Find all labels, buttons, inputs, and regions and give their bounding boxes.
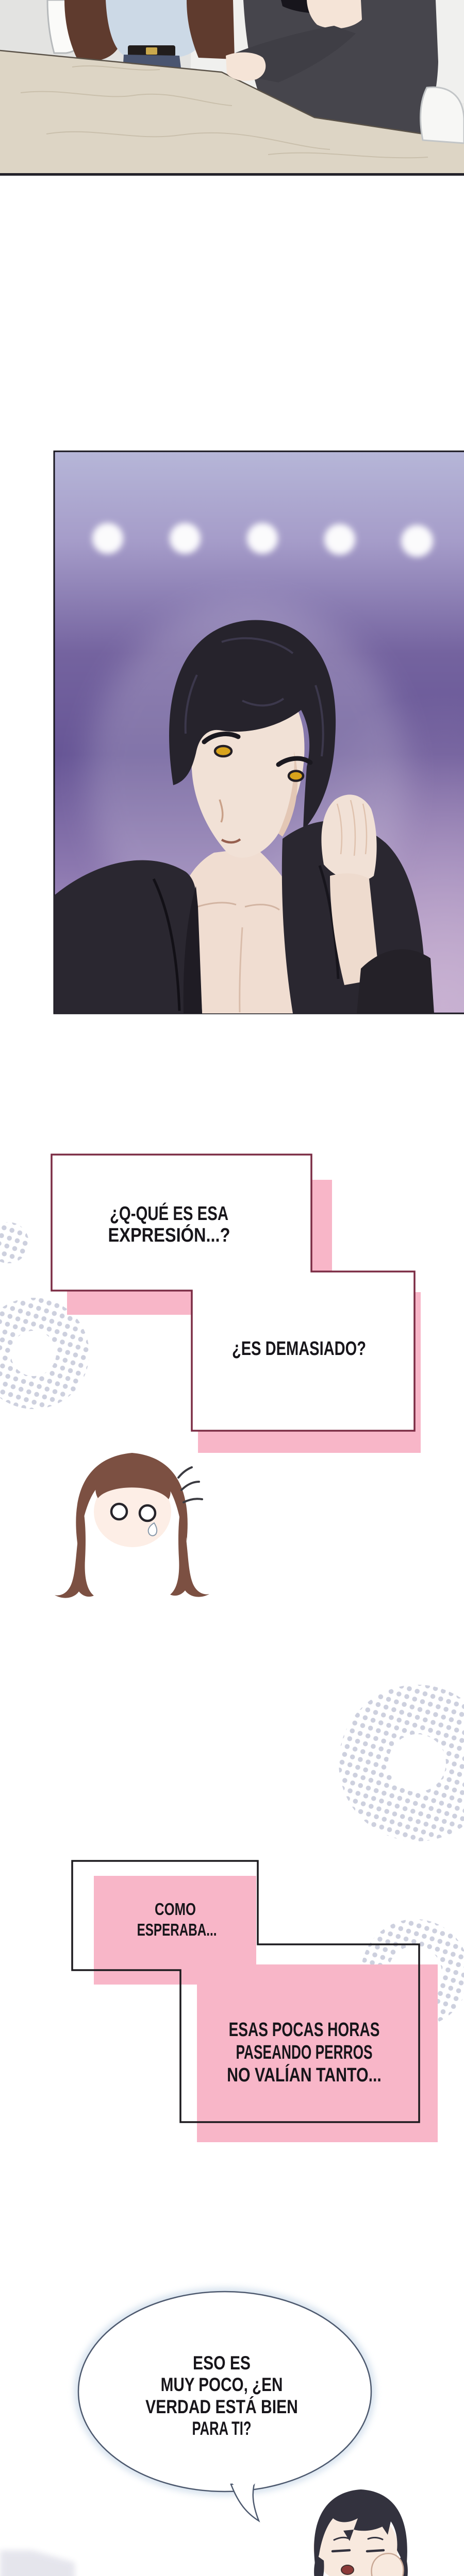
svg-text:NO VALÍAN TANTO...: NO VALÍAN TANTO... (227, 2063, 382, 2086)
svg-text:ESAS POCAS HORAS: ESAS POCAS HORAS (229, 2019, 380, 2041)
svg-text:¿Q-QUÉ ES ESA: ¿Q-QUÉ ES ESA (110, 1202, 228, 1225)
svg-text:MUY POCO, ¿EN: MUY POCO, ¿EN (161, 2375, 283, 2396)
svg-text:ESO ES: ESO ES (193, 2352, 251, 2374)
svg-text:VERDAD ESTÁ BIEN: VERDAD ESTÁ BIEN (145, 2396, 298, 2418)
svg-text:PASEANDO PERROS: PASEANDO PERROS (236, 2041, 372, 2063)
svg-text:COMO: COMO (155, 1900, 196, 1919)
svg-text:EXPRESIÓN...?: EXPRESIÓN...? (108, 1224, 230, 1246)
svg-text:ESPERABA...: ESPERABA... (137, 1921, 217, 1940)
svg-text:¿ES DEMASIADO?: ¿ES DEMASIADO? (232, 1337, 366, 1360)
svg-text:PARA TI?: PARA TI? (192, 2417, 251, 2439)
